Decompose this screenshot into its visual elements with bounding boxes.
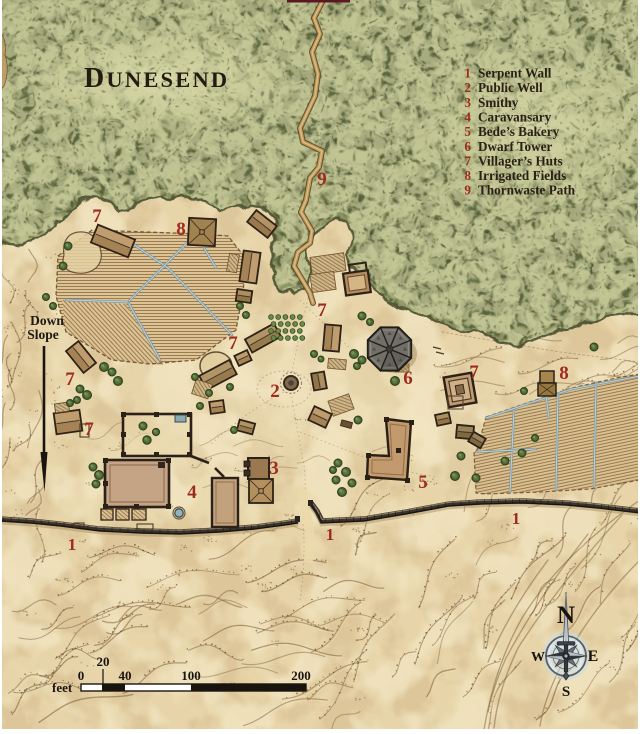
svg-text:Slope: Slope	[27, 327, 59, 342]
svg-text:Bede’s Bakery: Bede’s Bakery	[478, 124, 560, 139]
svg-text:Villager’s Huts: Villager’s Huts	[478, 153, 563, 168]
svg-text:2: 2	[464, 80, 471, 95]
svg-text:feet: feet	[52, 680, 73, 695]
svg-text:5: 5	[464, 124, 471, 139]
svg-text:7: 7	[65, 369, 75, 390]
svg-text:3: 3	[464, 95, 471, 110]
svg-text:5: 5	[418, 472, 428, 493]
svg-text:4: 4	[464, 110, 471, 125]
svg-text:E: E	[588, 648, 599, 665]
svg-text:100: 100	[181, 668, 201, 683]
svg-text:W: W	[531, 650, 545, 665]
svg-text:1: 1	[512, 509, 521, 528]
svg-text:9: 9	[317, 169, 327, 190]
svg-text:4: 4	[187, 482, 197, 503]
svg-text:1: 1	[68, 535, 77, 554]
svg-text:7: 7	[84, 419, 94, 440]
svg-text:Public Well: Public Well	[478, 80, 543, 95]
svg-text:Irrigated Fields: Irrigated Fields	[478, 168, 566, 183]
svg-text:1: 1	[464, 66, 471, 81]
svg-text:Down: Down	[30, 313, 64, 328]
svg-text:7: 7	[92, 206, 102, 227]
svg-text:1: 1	[326, 525, 335, 544]
svg-text:20: 20	[97, 654, 110, 669]
svg-text:S: S	[562, 684, 570, 700]
svg-text:40: 40	[119, 668, 132, 683]
svg-text:2: 2	[270, 381, 280, 402]
svg-text:DUNESEND: DUNESEND	[84, 63, 229, 94]
svg-text:200: 200	[291, 668, 311, 683]
svg-text:9: 9	[464, 183, 471, 198]
svg-text:8: 8	[464, 168, 471, 183]
svg-text:Serpent Wall: Serpent Wall	[478, 66, 552, 81]
svg-text:6: 6	[464, 139, 471, 154]
svg-text:Caravansary: Caravansary	[478, 110, 552, 125]
svg-text:Dwarf Tower: Dwarf Tower	[478, 139, 552, 154]
svg-text:8: 8	[176, 219, 186, 240]
svg-text:7: 7	[228, 333, 238, 354]
svg-text:7: 7	[317, 300, 327, 321]
svg-text:8: 8	[559, 363, 569, 384]
svg-text:7: 7	[469, 362, 479, 383]
svg-text:Thornwaste Path: Thornwaste Path	[478, 183, 576, 198]
svg-text:7: 7	[464, 153, 471, 168]
svg-text:6: 6	[403, 368, 413, 389]
svg-text:0: 0	[78, 668, 85, 683]
svg-text:Smithy: Smithy	[478, 95, 519, 110]
svg-text:N: N	[557, 602, 575, 629]
svg-text:3: 3	[269, 458, 279, 479]
